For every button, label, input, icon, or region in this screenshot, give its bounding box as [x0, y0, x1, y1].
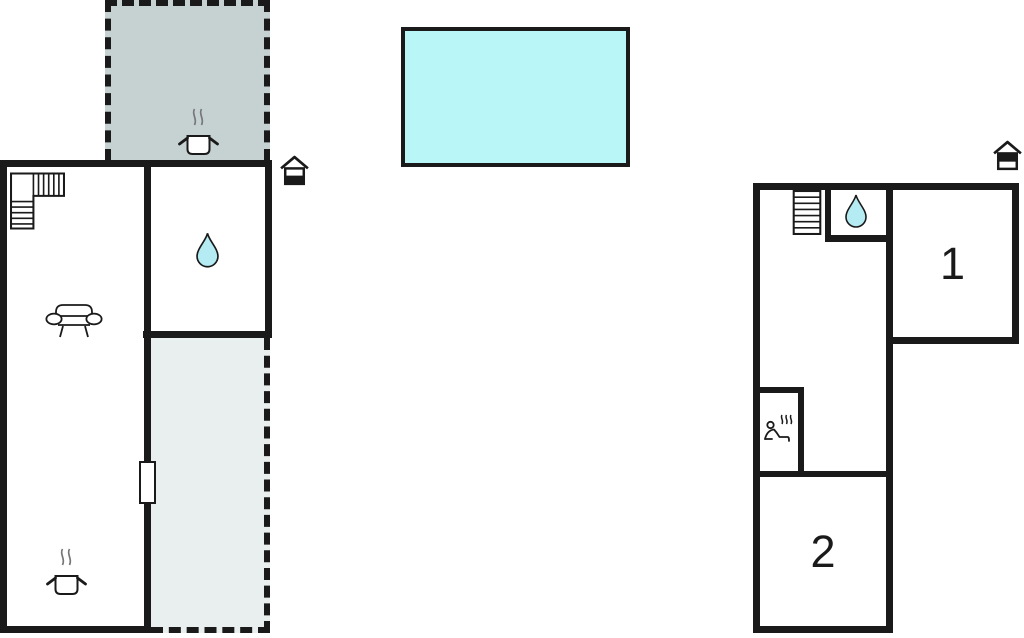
cooking-pot-icon	[175, 106, 222, 160]
wall	[143, 331, 272, 338]
water-drop-icon	[845, 193, 867, 229]
wall	[265, 160, 272, 338]
wall	[0, 626, 151, 633]
wall	[0, 160, 7, 633]
wall	[798, 387, 804, 477]
house-entrance-icon	[993, 140, 1022, 173]
wall	[886, 337, 1019, 344]
swimming-pool	[401, 27, 630, 167]
house-entrance-icon	[280, 155, 309, 188]
sauna-icon	[762, 411, 796, 451]
wall	[825, 235, 893, 242]
wall	[1012, 183, 1019, 344]
cooking-pot-icon	[43, 546, 90, 600]
water-drop-icon	[196, 231, 219, 269]
wall	[753, 183, 760, 633]
stairs-icon	[10, 172, 65, 230]
wall	[753, 626, 893, 633]
room-label-bedroom-1: 1	[893, 190, 1012, 337]
wall	[886, 183, 893, 633]
sofa-icon	[45, 297, 103, 341]
floor-plan-canvas: 1 2	[0, 0, 1024, 638]
room-label-bedroom-2: 2	[760, 477, 886, 626]
stairs-icon	[792, 190, 822, 235]
wall	[825, 183, 831, 242]
wall	[144, 160, 151, 633]
wall	[0, 160, 272, 167]
terrace-lower	[151, 338, 270, 633]
door-opening	[139, 461, 156, 504]
